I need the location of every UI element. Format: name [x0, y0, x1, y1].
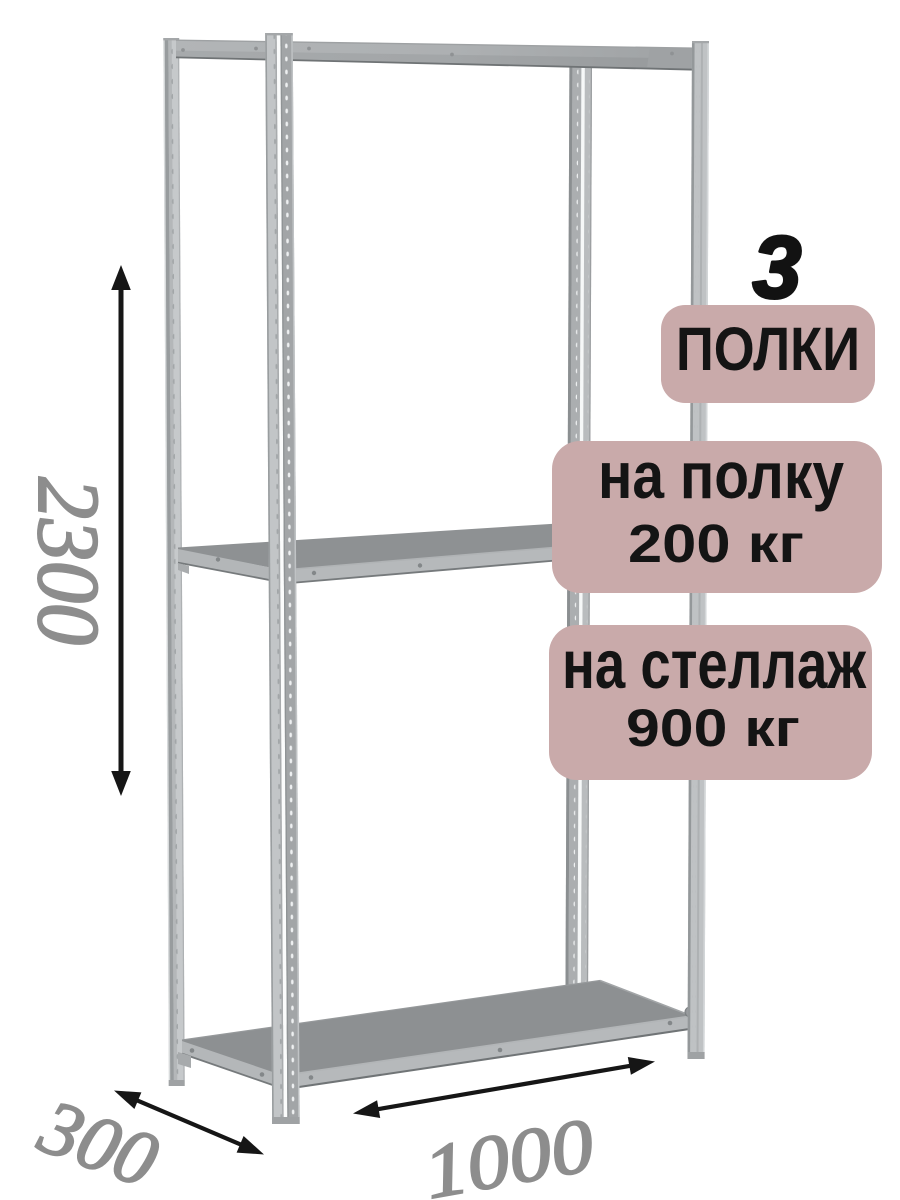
svg-text:900 кг: 900 кг: [626, 699, 800, 758]
svg-text:200 кг: 200 кг: [628, 514, 804, 574]
svg-text:2300: 2300: [19, 477, 116, 645]
svg-text:на полку: на полку: [598, 439, 844, 512]
svg-text:на стеллаж: на стеллаж: [562, 626, 867, 703]
svg-text:3: 3: [753, 218, 802, 317]
svg-text:ПОЛКИ: ПОЛКИ: [676, 315, 860, 383]
